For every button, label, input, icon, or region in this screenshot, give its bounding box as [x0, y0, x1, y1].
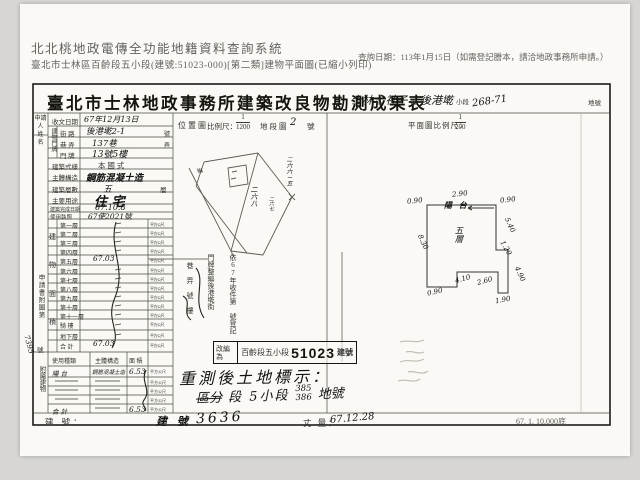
floor-row-label: 合 計 — [60, 342, 74, 351]
floor-row-unit: 平方公尺 — [150, 343, 164, 349]
annex-area: 6.53 — [129, 367, 146, 376]
land-section: 社子 — [386, 92, 408, 108]
floor-row-label: 騎 樓 — [60, 321, 74, 330]
stamp-box-prefix: 改編為 — [214, 342, 238, 363]
annex-use: 陽 台 — [52, 368, 67, 378]
section-map-number: 2 — [290, 117, 296, 128]
land-subsection: 後港墘 — [420, 92, 453, 108]
floor-row-label: 第六層 — [60, 267, 78, 276]
stamp-register-column: 依67年收件第 號登記 — [228, 254, 238, 346]
document-linework — [0, 0, 640, 480]
annex-header: 主體構造 — [95, 356, 119, 365]
floor-row-label: 第九層 — [60, 294, 78, 303]
floor-row-label: 第五層 — [60, 257, 78, 266]
query-date: 查詢日期：113年1月15日（如需登記謄本，請洽地政事務所申請。） — [358, 51, 608, 63]
floor-row-unit: 平方公尺 — [150, 322, 164, 328]
field-value: 鋼筋混凝土造 — [86, 170, 143, 184]
dim-top: 2.90 — [452, 189, 468, 199]
build-no-prefix: 建 號 — [156, 413, 191, 429]
balcony-label: 陽 台 — [444, 200, 469, 211]
annex-header: 使用種類 — [52, 356, 76, 365]
field-value: 13號5樓 — [92, 147, 127, 160]
floor-row-unit: 平方公尺 — [150, 333, 164, 339]
land-lot-label: 地號 — [588, 97, 601, 107]
floor-row-unit: 平方公尺 — [150, 295, 164, 301]
floor-row-unit: 平方公尺 — [150, 304, 164, 310]
floor-row-label: 第三層 — [60, 239, 78, 248]
land-lot: 268-71 — [471, 94, 507, 110]
field-value: 67使2021號 — [88, 211, 132, 222]
field-unit: 弄 — [164, 140, 170, 149]
field-unit: 號 — [164, 129, 170, 138]
system-title: 北北桃地政電傳全功能地籍資料查詢系統 — [31, 38, 283, 57]
land-section-label: 段 — [411, 96, 418, 106]
parcel-label: 二六七 — [268, 196, 275, 216]
area-group-char: 積 — [49, 317, 56, 327]
side-note-suffix: 號 — [37, 344, 44, 354]
resurvey-lot-numbers: 385 386 — [295, 384, 312, 403]
floor-row-label: 第八層 — [60, 285, 78, 294]
floor-row-unit: 平方公尺 — [150, 258, 164, 264]
annex-structure: 鋼筋混凝土造 — [92, 368, 125, 376]
resurvey-prefix: 區分 — [196, 387, 223, 407]
land-subsection-label: 小段 — [456, 96, 469, 106]
resurvey-suffix: 地號 — [317, 382, 344, 402]
annex-unit: 平方公尺 — [150, 369, 166, 375]
applicant-label: 申請人 姓 名 — [34, 115, 47, 147]
pencil-scribble — [398, 340, 428, 381]
stamp-lane-column: 巷 弄 號 樓 — [185, 262, 195, 342]
area-group-char: 建 — [49, 232, 56, 242]
floor-row-label: 地下層 — [60, 332, 78, 341]
parcel-label: 二六六－五 — [284, 156, 293, 192]
land-district-label: 區 — [376, 96, 383, 106]
field-value: 67年12月13日 — [84, 114, 139, 125]
floor-row-unit: 平方公尺 — [150, 231, 164, 237]
floor-row-unit: 平方公尺 — [150, 313, 164, 319]
side-note-text: 申請書附圖第 — [35, 274, 45, 334]
floor-row-label: 第十層 — [60, 303, 78, 312]
resurvey-mid: 段 5小段 — [228, 384, 290, 405]
page-subtitle: 臺北市士林區百齡段五小段(建號:51023-000)[第二類]建物平面圖(已縮小… — [31, 57, 372, 71]
area-group-char: 物 — [49, 260, 56, 270]
stamp-box-section: 百齡段五小段 — [241, 347, 289, 358]
annex-unit: 平方公尺 — [150, 389, 166, 395]
location-scale-label: 比例尺： — [207, 121, 237, 132]
plan-scale-fraction: 1 200 — [455, 114, 466, 131]
location-scale-fraction: 1 1200 — [236, 114, 250, 131]
land-district: 士林 — [351, 92, 373, 108]
stamp-box-number: 51023 — [291, 345, 335, 361]
area-group-char: 面 — [49, 289, 56, 299]
field-label: 建築完成日期 — [50, 206, 80, 213]
field-label: 建築層數 — [52, 184, 78, 194]
annex-unit: 平方公尺 — [150, 380, 166, 386]
build-no-value: 3636 — [196, 409, 244, 427]
floor-row-label: 第十一層 — [60, 312, 84, 321]
build-no-label: 建 號： — [45, 416, 85, 428]
annex-use: 合 計 — [52, 406, 67, 416]
field-label: 街 路 — [60, 128, 75, 138]
print-code: 67. 1. 10,000底 — [516, 416, 566, 427]
parcel-label: 二六八 — [249, 186, 259, 214]
location-panel-label: 位置圖 — [178, 120, 208, 131]
field-label: 巷 弄 — [60, 139, 75, 149]
floor-row-unit: 平方公尺 — [150, 222, 164, 228]
floor-row-label: 第四層 — [60, 248, 78, 257]
renumber-stamp-box: 改編為 百齡段五小段 51023 建號 — [213, 341, 357, 364]
floor-row-unit: 平方公尺 — [150, 286, 164, 292]
floor-row-value: 67.03 — [93, 254, 114, 263]
dim-top-right: 0.90 — [500, 195, 516, 205]
floor-row-label: 第一層 — [60, 221, 78, 230]
field-value: 後港墘2-1 — [86, 125, 125, 137]
floor-row-unit: 平方公尺 — [150, 249, 164, 255]
section-map-label: 地段圖 — [260, 121, 289, 132]
plan-floor-label: 五層 — [452, 226, 464, 250]
dim-top-left: 0.90 — [407, 196, 423, 206]
field-label: 門 牌 — [60, 150, 75, 160]
floor-row-unit: 平方公尺 — [150, 277, 164, 283]
stamp-box-suffix: 建號 — [337, 347, 353, 358]
field-label: 主要用途 — [52, 195, 78, 205]
field-label: 建築式樣 — [52, 161, 78, 171]
scanned-cadastral-survey-page: { "header": { "system_title": "北北桃地政電傳全功… — [0, 0, 640, 480]
field-unit: 層 — [160, 184, 167, 194]
annex-area: 6.53 — [129, 405, 146, 414]
floor-row-label: 第七層 — [60, 276, 78, 285]
floor-row-value: 67.03 — [93, 339, 114, 348]
stamp-renumber-column: 門牌整編後港墘街 — [206, 254, 216, 346]
annex-unit: 平方公尺 — [150, 398, 166, 404]
annex-group-label: 附屬建物 — [36, 366, 46, 412]
floor-row-label: 第二層 — [60, 230, 78, 239]
address-group-label: 建物門牌 — [49, 128, 58, 158]
land-mark: 士林 區 社子 段 後港墘 小段 268-71 — [351, 92, 507, 108]
field-label: 收文日期 — [52, 116, 78, 126]
field-label: 主體構造 — [52, 172, 78, 182]
annex-header: 面 積 — [129, 356, 143, 365]
section-map-suffix: 號 — [307, 121, 315, 132]
floor-row-unit: 平方公尺 — [150, 240, 164, 246]
floor-row-unit: 平方公尺 — [150, 268, 164, 274]
